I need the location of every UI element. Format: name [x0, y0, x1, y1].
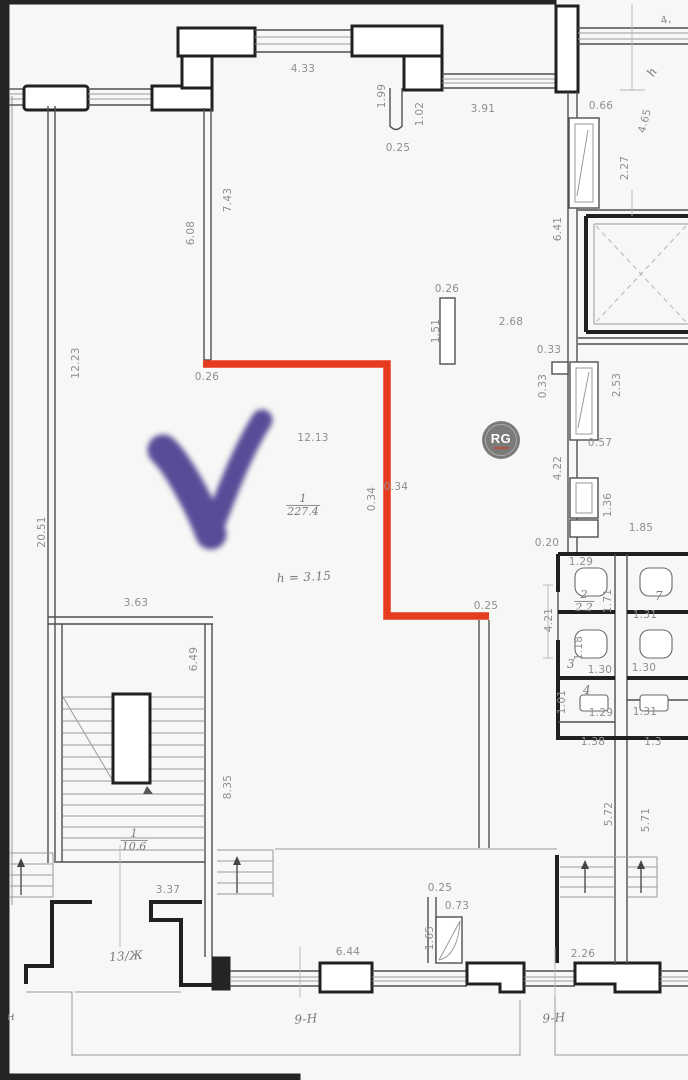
checkmark-right-stroke [210, 420, 262, 535]
checkmark-left-stroke [163, 450, 211, 534]
left-wall [48, 106, 55, 863]
small-column [440, 298, 455, 364]
toilet-fixture [575, 568, 607, 596]
toilet-fixture [575, 630, 607, 658]
checkmark-annotation [163, 420, 262, 535]
wc-cubicles [543, 554, 688, 965]
photo-edge [0, 0, 556, 1080]
rg-logo-watermark: RG [482, 421, 520, 459]
bottom-facade [26, 947, 688, 1055]
floor-plan-drawing [0, 0, 688, 1080]
sink-fixture [640, 695, 668, 711]
toilet-fixture [640, 630, 672, 658]
stairwell [48, 617, 213, 957]
highlight-path-annotation [203, 364, 489, 616]
center-wall [204, 108, 211, 360]
bottom-right-stairs [560, 857, 657, 897]
sink-fixture [580, 695, 608, 711]
stair-direction-arrow [143, 786, 153, 794]
right-wall-and-doors [552, 92, 599, 555]
elevator-shaft [578, 190, 688, 344]
entry-area [26, 620, 557, 992]
logo-ring [485, 424, 517, 456]
floor-plan: 4.331.991.020.253.910.664.65h4,2.276.417… [0, 0, 688, 1080]
toilet-fixture [640, 568, 672, 596]
